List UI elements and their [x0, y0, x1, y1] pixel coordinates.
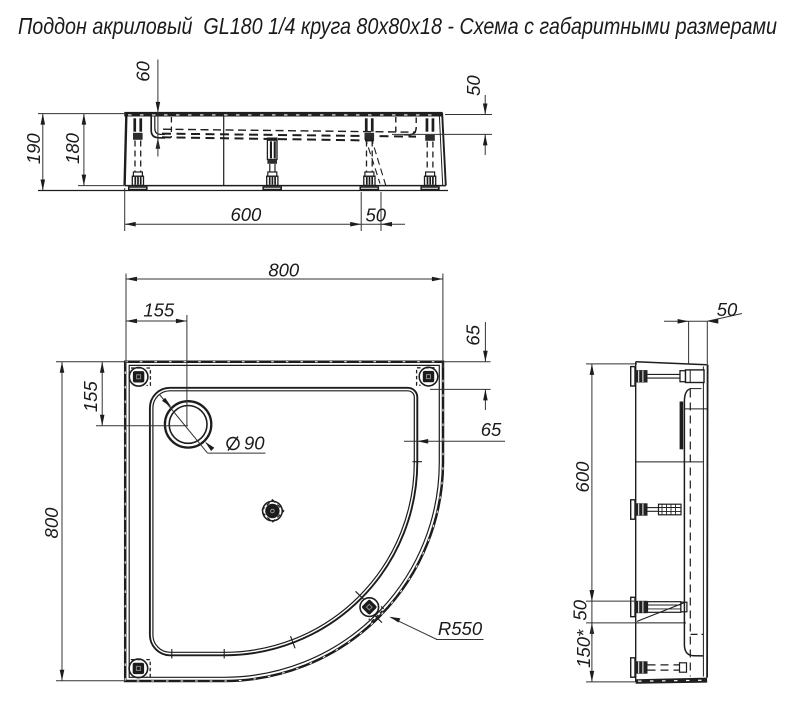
svg-text:50: 50 — [463, 75, 484, 96]
svg-text:180: 180 — [62, 132, 83, 164]
svg-text:65: 65 — [481, 419, 502, 440]
svg-text:50: 50 — [569, 599, 590, 620]
svg-text:90: 90 — [244, 433, 265, 454]
svg-text:Поддон акриловый GL180 1/4 кр: Поддон акриловый GL180 1/4 круга 80х80х1… — [18, 13, 777, 39]
svg-text:600: 600 — [230, 204, 262, 225]
svg-text:65: 65 — [462, 324, 483, 345]
svg-text:155: 155 — [80, 381, 101, 413]
svg-text:50: 50 — [717, 299, 738, 320]
svg-text:600: 600 — [572, 461, 593, 493]
svg-text:190: 190 — [23, 133, 44, 165]
svg-text:R550: R550 — [438, 618, 483, 639]
svg-text:155: 155 — [143, 300, 175, 321]
svg-text:800: 800 — [41, 507, 62, 539]
svg-text:800: 800 — [268, 260, 300, 281]
svg-text:150*: 150* — [573, 629, 594, 668]
svg-text:60: 60 — [133, 61, 154, 82]
svg-text:50: 50 — [366, 205, 387, 226]
